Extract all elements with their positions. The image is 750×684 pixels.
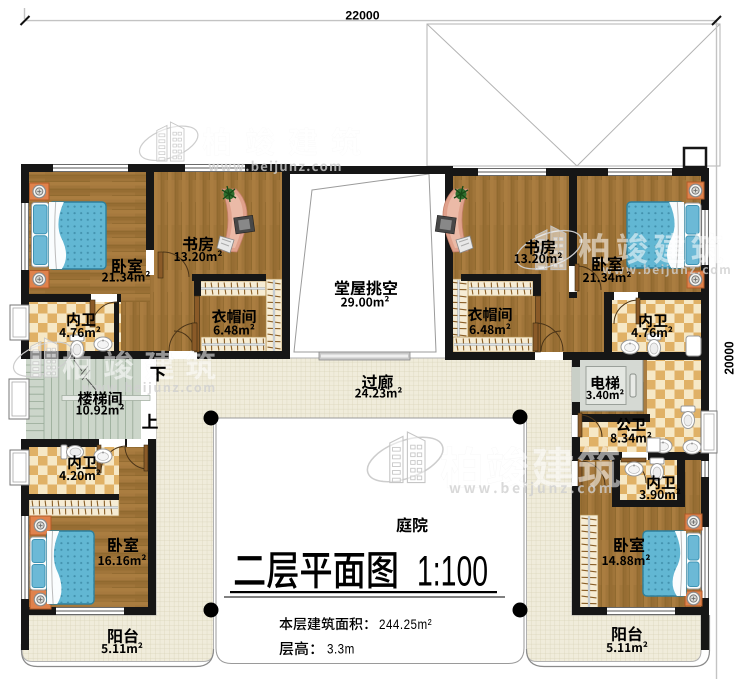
- svg-text:20000: 20000: [722, 341, 737, 374]
- svg-text:244.25m²: 244.25m²: [379, 616, 432, 632]
- svg-text:3.3m: 3.3m: [327, 640, 355, 656]
- svg-text:1:100: 1:100: [417, 547, 488, 595]
- svg-text:22000: 22000: [345, 9, 379, 23]
